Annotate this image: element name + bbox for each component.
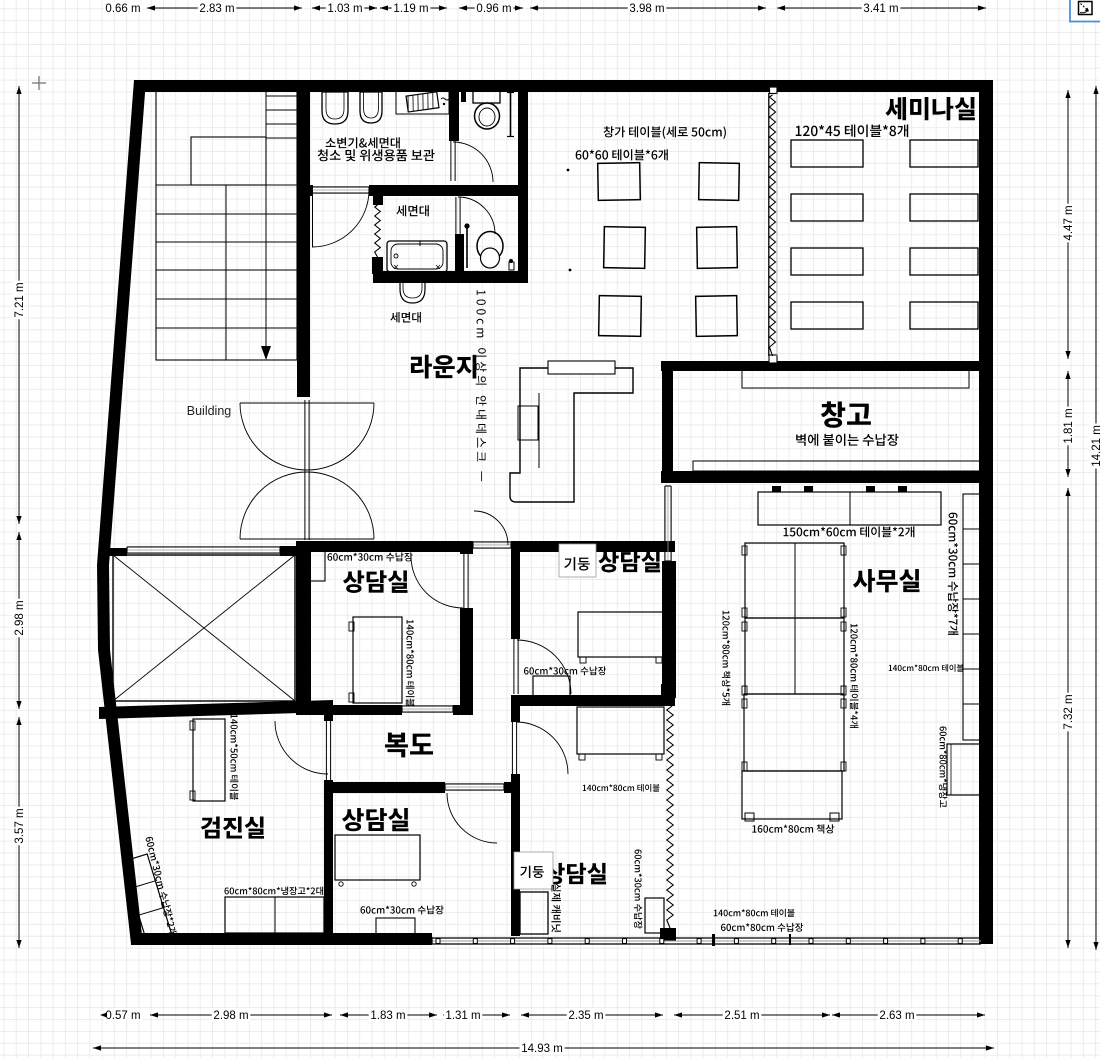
svg-text:4.47 m: 4.47 m [1063, 205, 1075, 240]
svg-text:14.21 m: 14.21 m [1091, 425, 1100, 467]
svg-text:1.83 m: 1.83 m [370, 1010, 405, 1022]
svg-text:2.98 m: 2.98 m [14, 600, 26, 635]
svg-text:1.19 m: 1.19 m [393, 3, 428, 15]
svg-text:1.81 m: 1.81 m [1063, 408, 1075, 443]
svg-text:0.66 m: 0.66 m [105, 3, 140, 15]
svg-text:2.83 m: 2.83 m [199, 3, 234, 15]
svg-text:2.98 m: 2.98 m [213, 1010, 248, 1022]
svg-text:7.21 m: 7.21 m [14, 282, 26, 317]
svg-text:2.51 m: 2.51 m [724, 1010, 759, 1022]
svg-text:0.96 m: 0.96 m [476, 3, 511, 15]
svg-text:1.03 m: 1.03 m [327, 3, 362, 15]
svg-text:0.57 m: 0.57 m [105, 1010, 140, 1022]
svg-text:2.63 m: 2.63 m [879, 1010, 914, 1022]
svg-text:2.35 m: 2.35 m [568, 1010, 603, 1022]
svg-text:14.93 m: 14.93 m [521, 1043, 563, 1055]
svg-text:3.57 m: 3.57 m [14, 808, 26, 843]
svg-text:Building: Building [187, 404, 232, 418]
svg-text:7.32 m: 7.32 m [1063, 694, 1075, 729]
svg-text:3.41 m: 3.41 m [863, 3, 898, 15]
svg-text:3.98 m: 3.98 m [629, 3, 664, 15]
svg-text:1.31 m: 1.31 m [445, 1010, 480, 1022]
